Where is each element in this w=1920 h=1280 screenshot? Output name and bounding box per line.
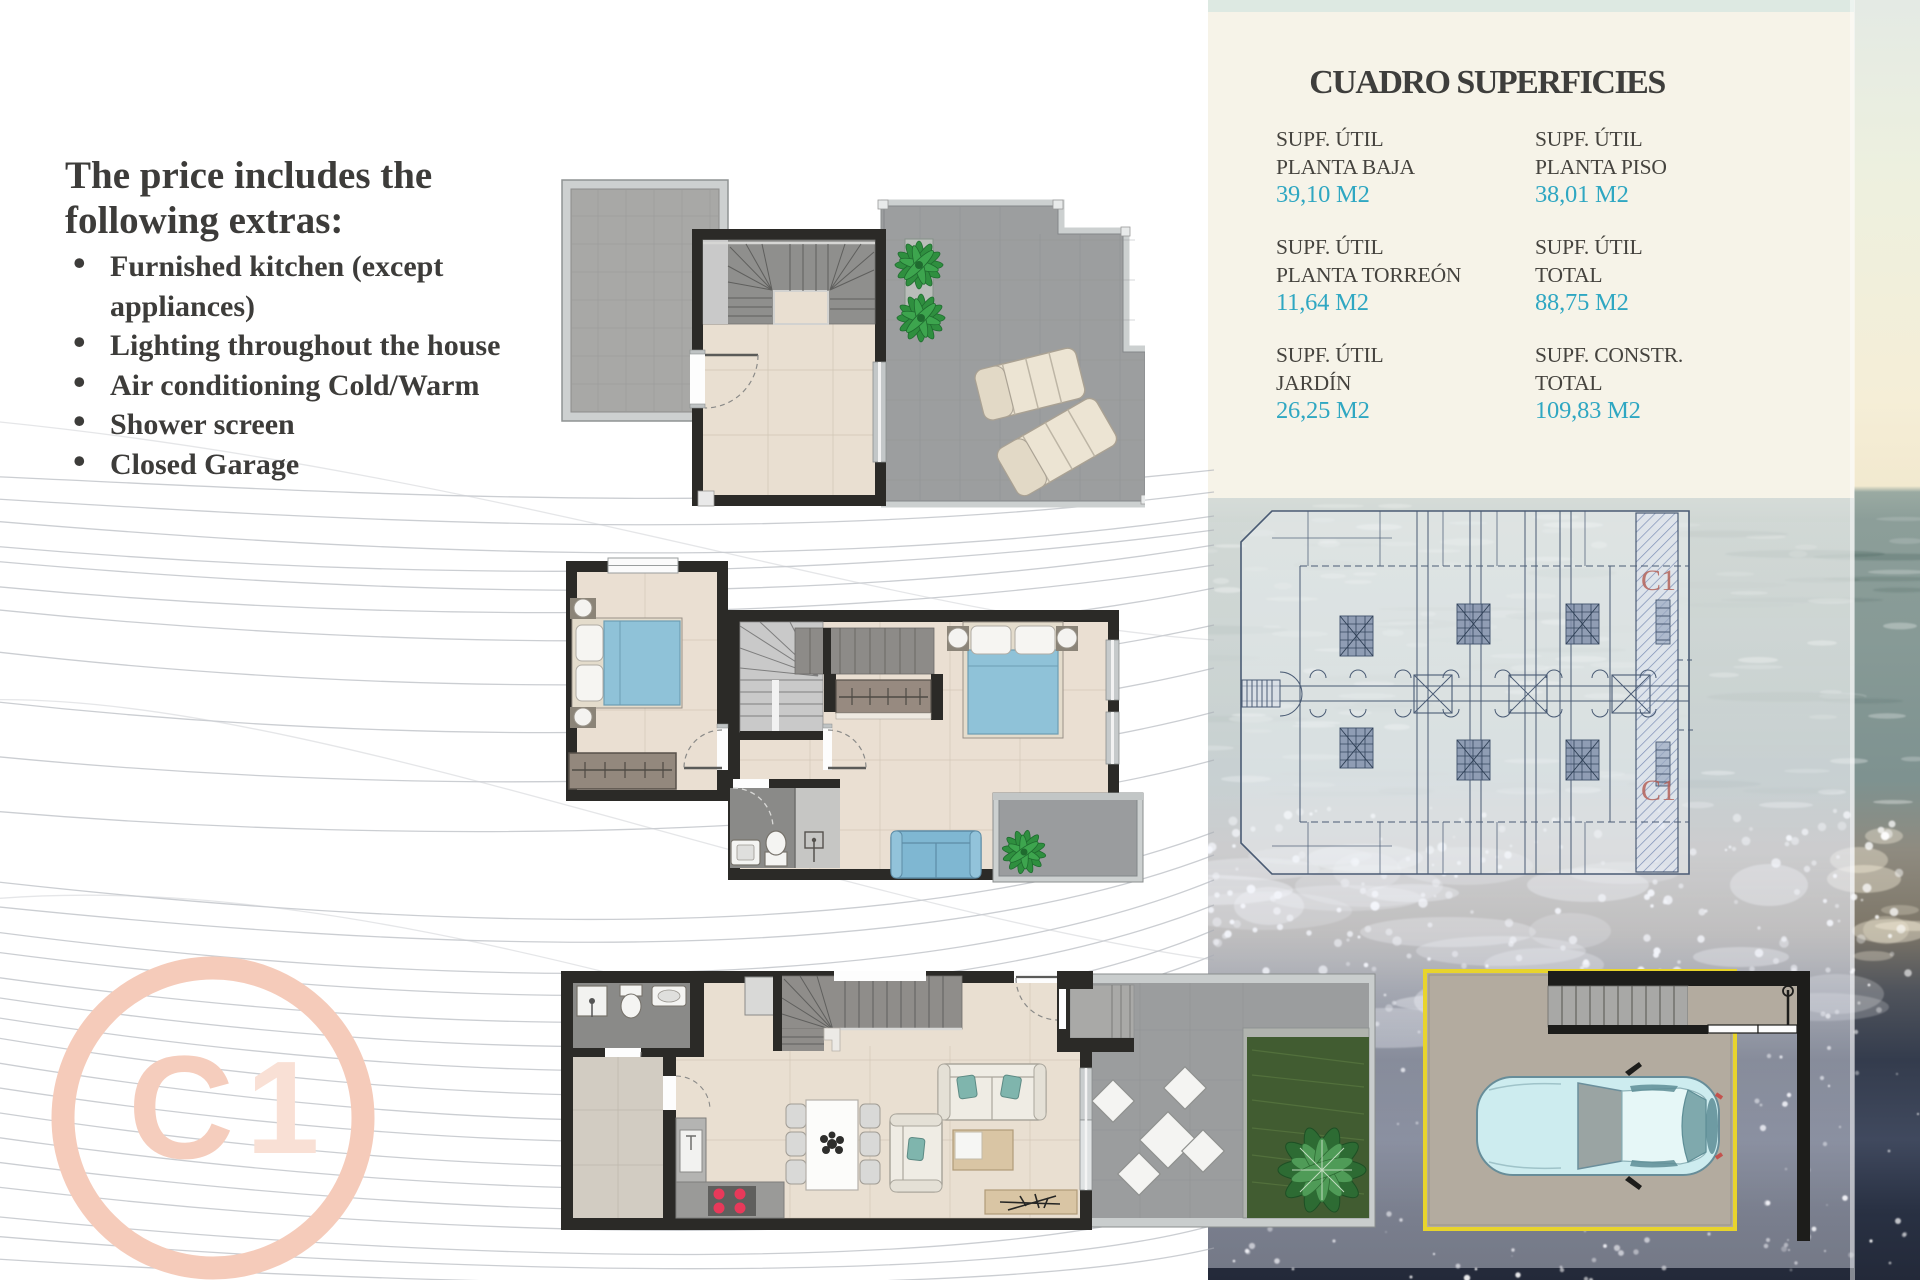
svg-text:C1: C1 (1641, 774, 1676, 807)
svg-text:1: 1 (246, 1034, 319, 1181)
svg-text:C: C (128, 1026, 234, 1190)
svg-text:C1: C1 (1641, 564, 1676, 597)
